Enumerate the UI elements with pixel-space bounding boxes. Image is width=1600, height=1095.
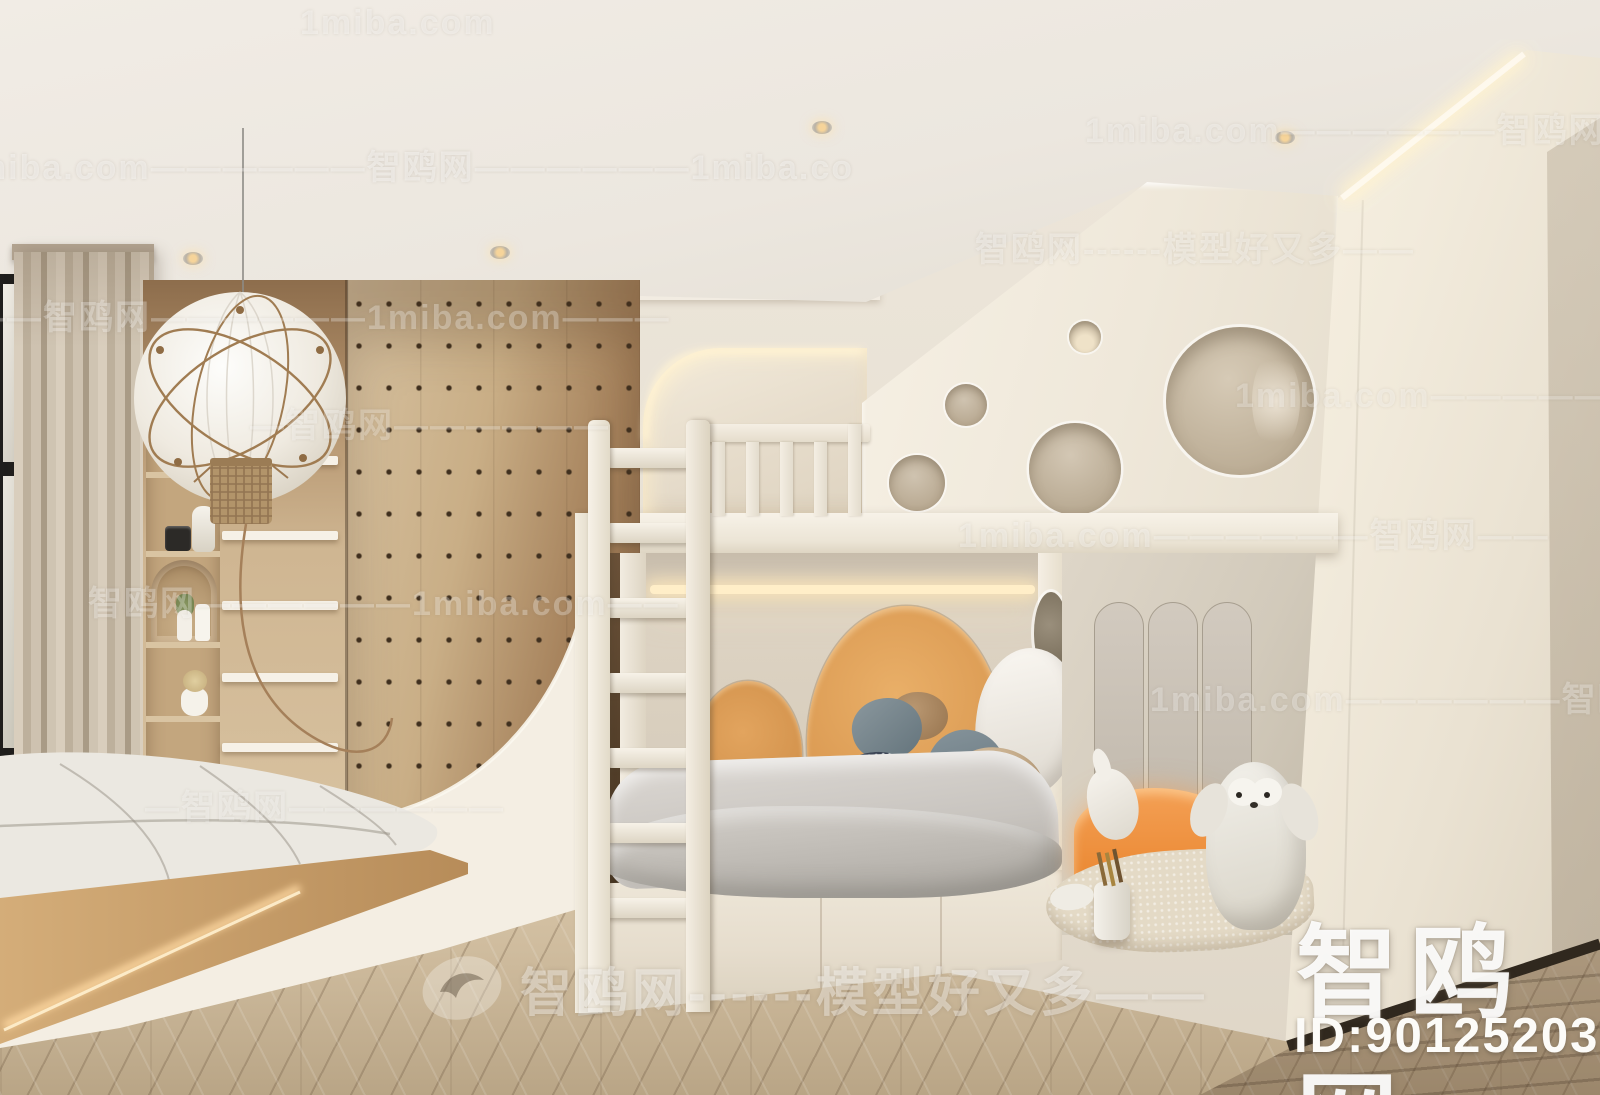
pendant-balloon-lamp bbox=[127, 128, 392, 752]
corner-watermark-title: 智鸥网 bbox=[1296, 892, 1600, 1095]
footer-watermark: 智鸥网------模型好又多—— bbox=[418, 950, 1208, 1026]
footer-watermark-text: 智鸥网------模型好又多—— bbox=[520, 951, 1208, 1026]
bird-logo-icon bbox=[418, 950, 506, 1026]
balloon-basket bbox=[210, 458, 272, 524]
interior-render-kids-bedroom: 1miba.com 1miba.com——————智鸥网——— 1miba.co… bbox=[0, 0, 1600, 1095]
recess-cove-light bbox=[646, 351, 862, 440]
corner-watermark-id: ID:901252039 bbox=[1294, 1008, 1600, 1064]
hanging-rope bbox=[240, 524, 392, 752]
